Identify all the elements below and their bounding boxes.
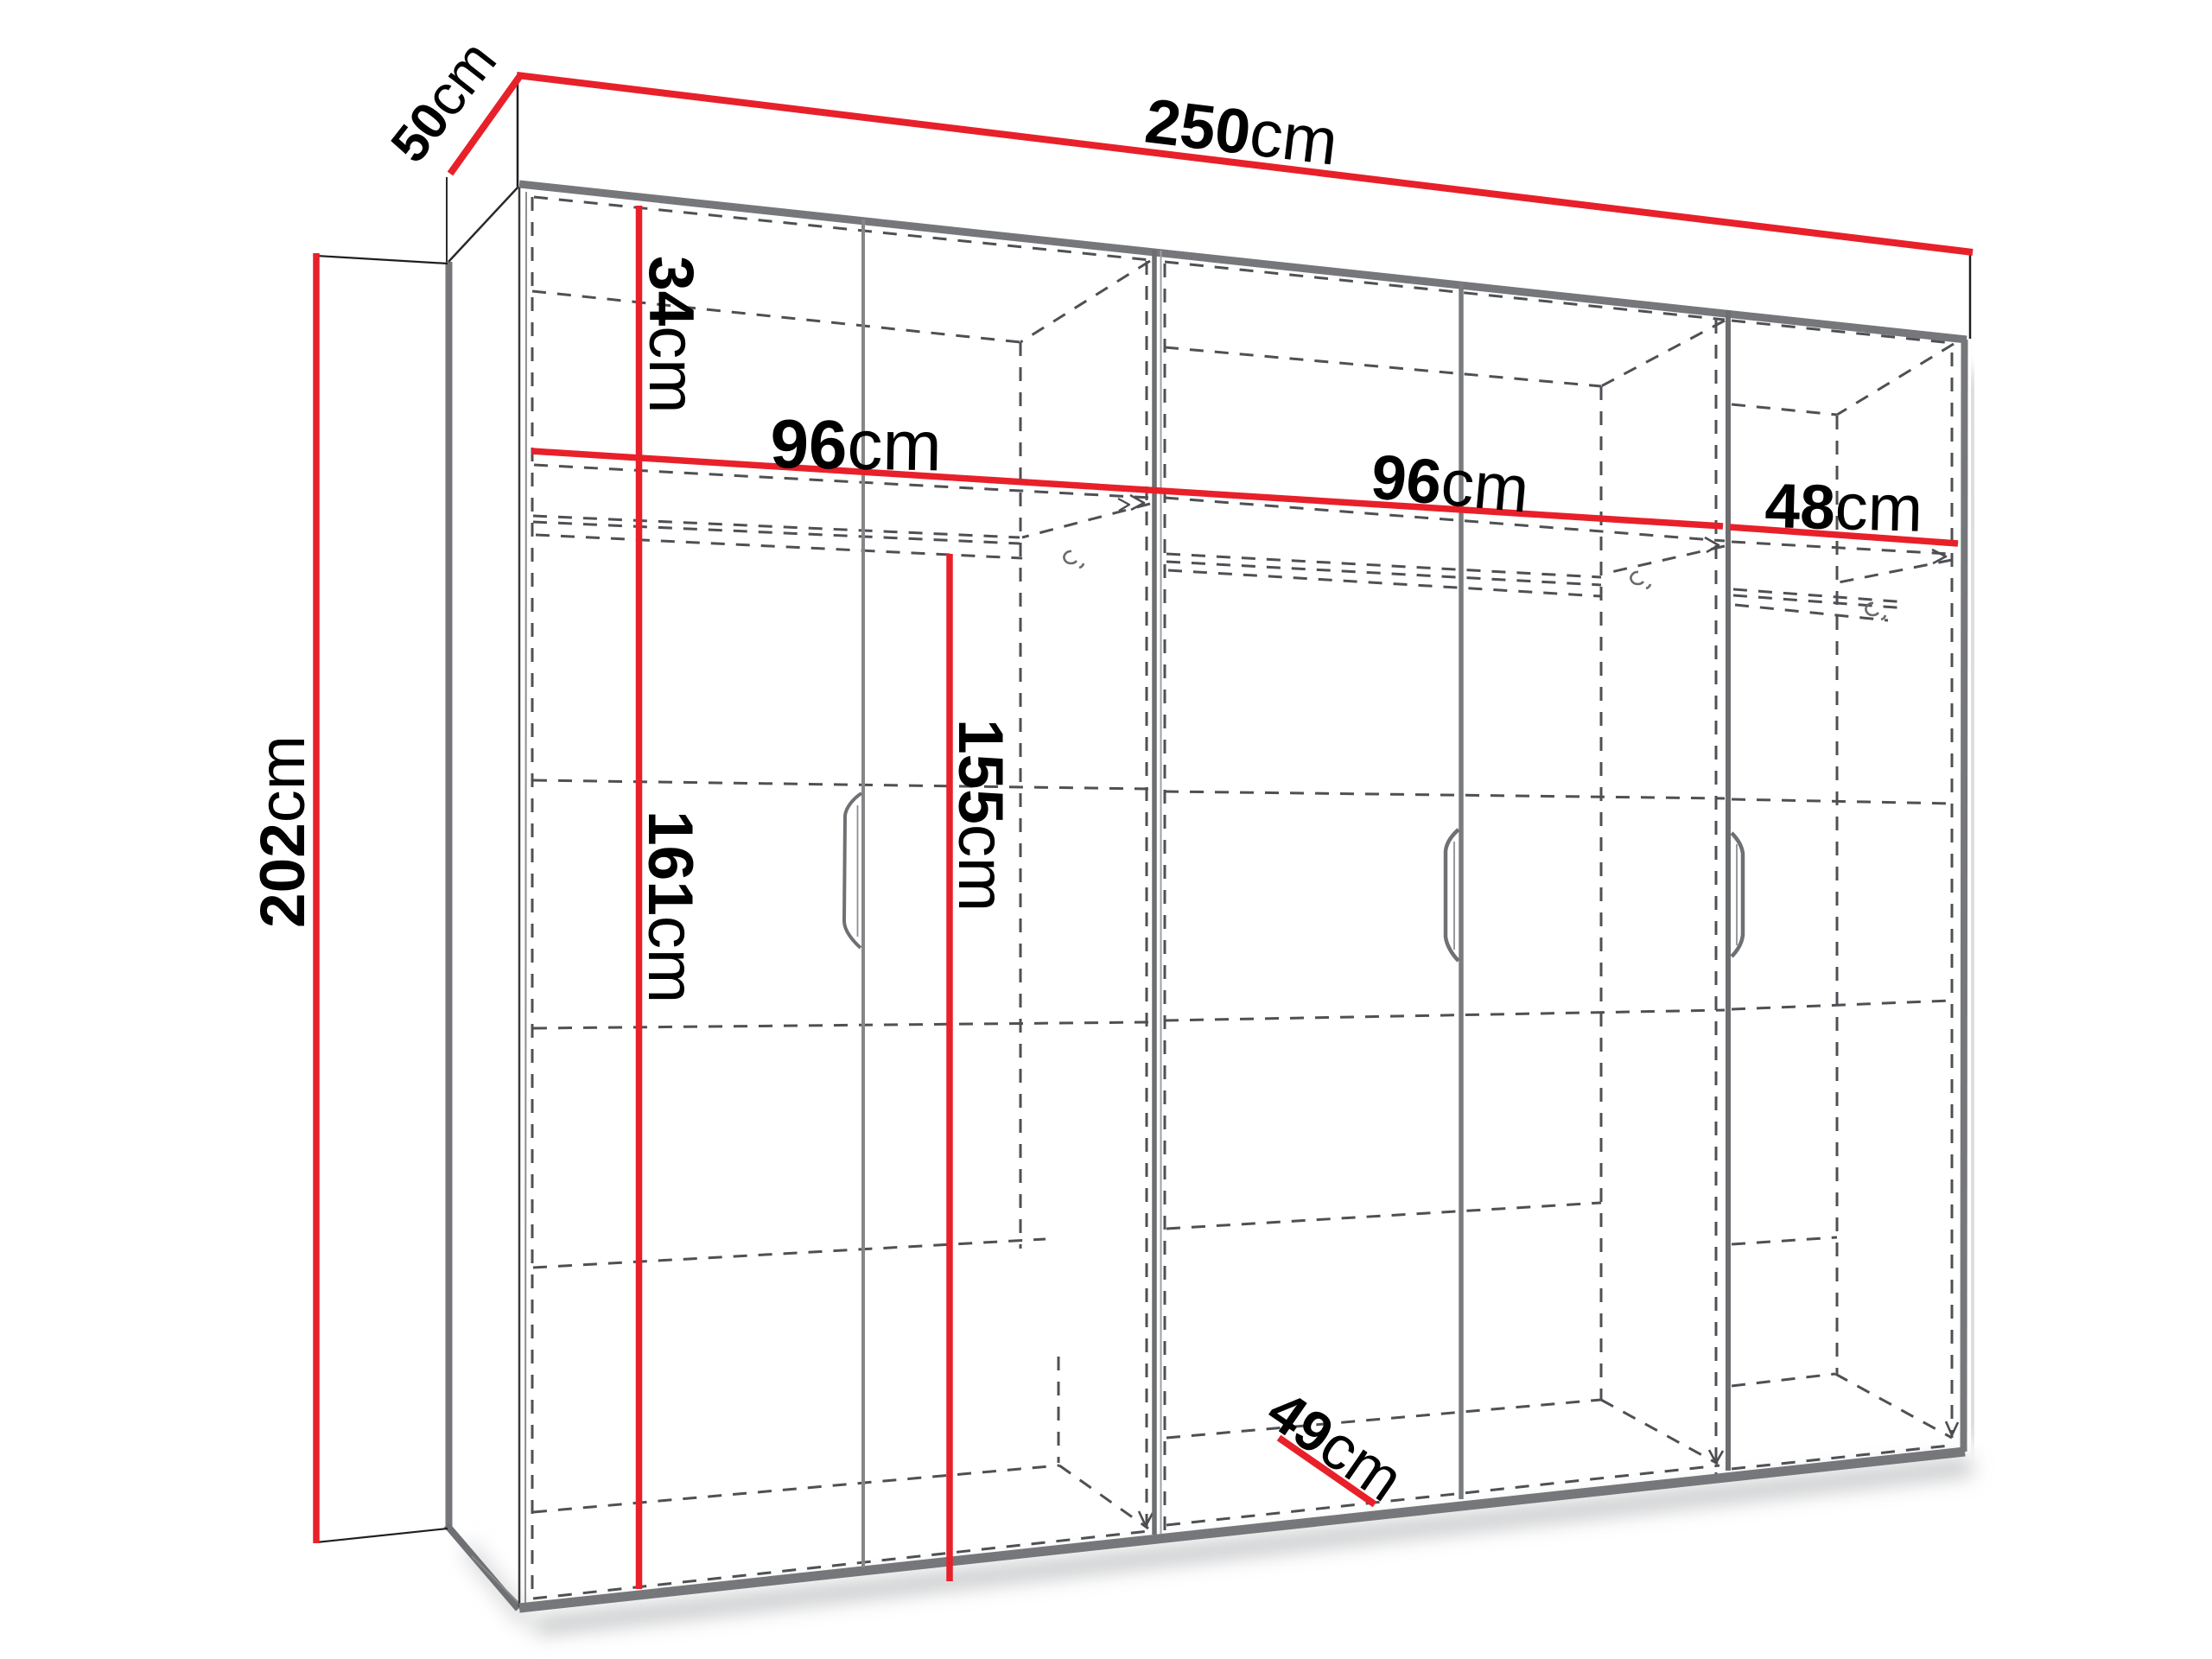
svg-text:202cm: 202cm xyxy=(245,735,319,928)
svg-text:48cm: 48cm xyxy=(1764,468,1924,546)
svg-text:161cm: 161cm xyxy=(634,810,708,1003)
svg-text:96cm: 96cm xyxy=(770,404,943,486)
svg-text:34cm: 34cm xyxy=(635,256,709,414)
svg-text:155cm: 155cm xyxy=(944,719,1018,912)
